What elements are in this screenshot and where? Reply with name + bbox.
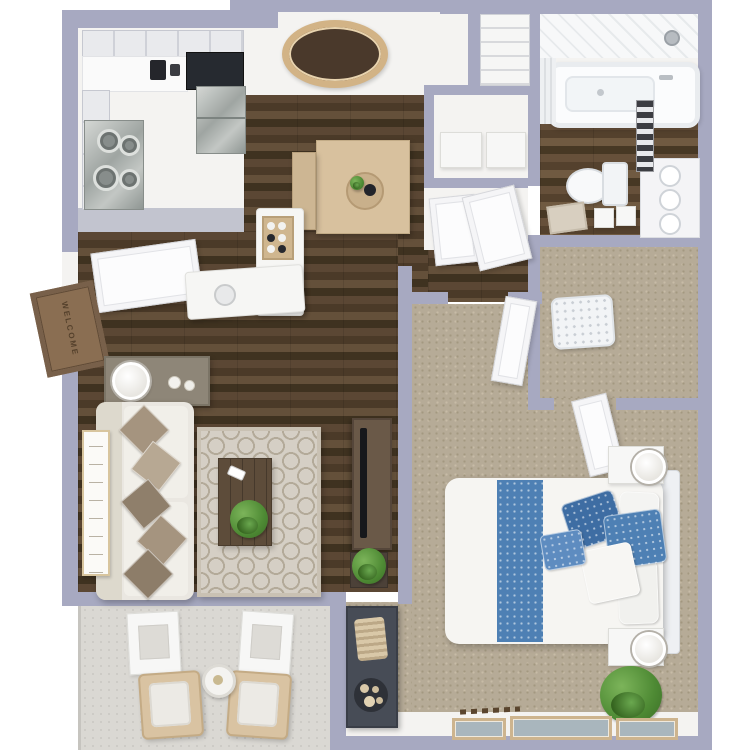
stove-burner [93,165,119,191]
patio-table-shelf [138,624,170,660]
toilet-tank [602,162,628,206]
wall-east [698,6,712,750]
towel-rack [636,100,654,172]
shower-head [664,30,680,46]
stove [84,120,144,210]
dresser-basket [354,617,388,662]
hall-nook-floor [440,14,470,85]
bar-sink [214,284,236,306]
side-table-jar [168,376,181,389]
wall-bedroom-north-left [412,292,448,304]
bar-serving-tray [262,216,294,260]
bathtub [548,62,700,128]
bathtub-drain [597,89,604,96]
vanity-vessel-sink [659,189,681,211]
candle [360,684,369,693]
tray-cup [278,234,286,242]
wall-kitchen-south [78,208,244,232]
stove-burner [119,135,140,156]
coffee-table-plant [230,500,268,538]
wall-west-upper [62,10,78,252]
tray-cup [278,245,286,253]
armchair-cushion [237,681,280,728]
side-table-jar [184,380,195,391]
vanity-vessel-sink [659,165,681,187]
candle [372,686,379,693]
linen-closet-shelves [480,14,530,86]
bed-accent-pillow-blue [539,529,587,572]
breakfast-bar-horizontal [184,264,305,320]
patio-table-shelf [250,624,282,660]
refrigerator [196,86,246,154]
toaster [170,64,180,76]
wall-kitchen-north [62,10,278,28]
wall-closet-room-west [424,95,434,188]
refrigerator-door-split [197,117,245,119]
nightstand-lamp [632,632,666,666]
leaning-wall-art-sign [82,430,110,576]
centerpiece-bowl [364,184,376,196]
stove-burner [97,129,121,153]
centerpiece-plant [350,176,364,190]
patio-table-decor [213,675,223,685]
wall-living-bedroom-divider [398,266,412,604]
bath-mat [546,201,588,234]
planter-plant [352,548,386,584]
vanity-soap-dish [594,208,614,228]
patio-armchair [138,670,204,740]
stove-burner [119,169,140,190]
wall-bedroom-west-lower [330,602,346,742]
patio-round-table [202,664,236,698]
closet-bifold-door-right [486,132,526,168]
dresser-candle-tray [354,678,388,712]
tray-cup [278,222,286,230]
round-wall-mirror [282,20,388,88]
vanity-accessory-jar [659,213,681,235]
bed-throw-pillow-white [579,541,641,605]
wall-art-frame [616,718,678,740]
welcome-doormat-text: WELCOME [60,301,80,357]
patio-side-table [126,611,181,676]
closet-bifold-door-left [440,132,482,168]
bedroom-dresser [346,606,398,728]
wall-dining-north [230,0,444,12]
wall-closet-south-right [616,398,712,410]
tray-cup [267,222,275,230]
shower-curtain [540,58,556,124]
candle [364,696,375,707]
nightstand-lamp [632,450,666,484]
candle [376,697,383,704]
kitchen-dark-counter [186,52,244,90]
laundry-basket [550,294,615,350]
bathtub-faucet [659,75,673,80]
wall-closet-room-north [424,85,528,95]
wall-northeast [440,0,712,14]
tray-cup [267,234,275,242]
tv-console [352,418,392,550]
armchair-cushion [148,681,191,728]
side-table-lamp [112,362,150,400]
tray-cup [267,245,275,253]
wall-closet-south-left [540,398,554,410]
vanity-soap-dish [616,206,636,226]
wall-art-frame [452,718,506,740]
tv-flatscreen [360,428,367,538]
bed-runner-blue [497,480,543,642]
wall-art-frame [510,716,612,740]
patio-side-table [238,610,294,675]
coffee-maker [150,60,166,80]
floor-plan-3d: WELCOME [0,0,750,750]
wall-linen-closet-west [468,8,480,86]
